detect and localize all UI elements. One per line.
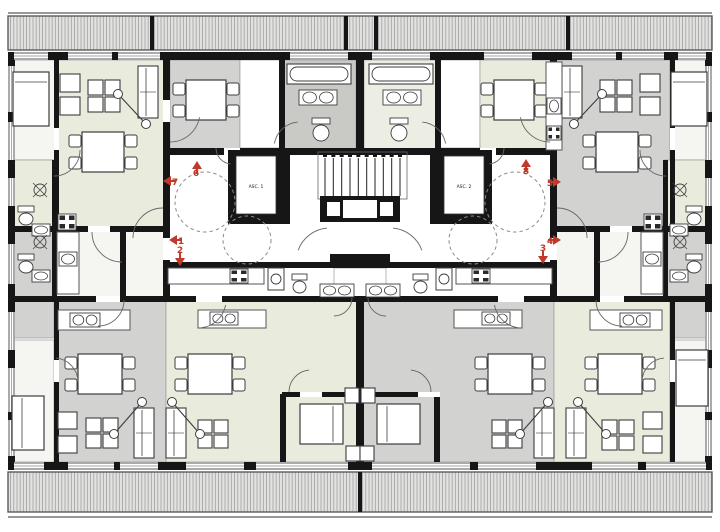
balcony-divider — [374, 16, 378, 50]
shelf — [640, 74, 660, 92]
shelf — [361, 388, 375, 403]
door-opening — [670, 128, 675, 150]
sofa-module — [619, 436, 634, 450]
chair — [639, 135, 651, 147]
entry-number-4: 4 — [547, 237, 553, 247]
tv-node — [142, 120, 151, 129]
toilet-tank — [686, 206, 702, 212]
chair — [175, 379, 187, 391]
entry-number-5: 5 — [547, 179, 553, 189]
chair — [123, 357, 135, 369]
door-opening — [498, 296, 524, 302]
chair — [69, 157, 81, 169]
sofa-module — [88, 97, 103, 112]
dining-table — [488, 354, 532, 394]
dining-table — [186, 80, 226, 120]
chair — [123, 379, 135, 391]
chair — [69, 135, 81, 147]
chair — [643, 379, 655, 391]
burner — [483, 271, 489, 275]
door-opening — [610, 226, 632, 232]
burner — [646, 224, 652, 229]
stair-nosing-dot — [373, 153, 377, 157]
burner — [646, 216, 652, 221]
stair-nosing-dot — [365, 153, 369, 157]
landing-inset — [343, 200, 377, 218]
balcony-divider — [566, 16, 570, 50]
toilet-bowl — [19, 213, 33, 225]
door-opening — [196, 296, 222, 302]
toilet-bowl — [391, 125, 407, 141]
door-opening — [300, 392, 322, 397]
stair-nosing-dot — [381, 153, 385, 157]
chair — [643, 357, 655, 369]
wall — [52, 160, 57, 298]
stair-nosing-dot — [348, 153, 352, 157]
stair-nosing-dot — [331, 153, 335, 157]
entrance-threshold — [330, 254, 390, 268]
landing-inset — [380, 202, 393, 216]
entry-number-3: 3 — [540, 244, 546, 254]
chair — [125, 157, 137, 169]
sofa-module — [619, 420, 634, 434]
chair — [233, 379, 245, 391]
room-corridor-top-right — [438, 60, 480, 148]
shelf — [346, 446, 360, 461]
entry-number-2: 2 — [177, 246, 183, 256]
chair — [125, 135, 137, 147]
burner — [474, 278, 480, 282]
stair-nosing-dot — [323, 153, 327, 157]
burner — [474, 271, 480, 275]
door-opening — [163, 238, 170, 260]
shelf — [345, 388, 359, 403]
sofa-module — [617, 80, 632, 95]
balcony-divider — [358, 472, 362, 512]
balcony-top — [8, 16, 712, 50]
shelf — [360, 446, 374, 461]
burner — [69, 224, 75, 229]
floor-plan-screenshot: ASC. 1ASC. 267128543 — [0, 0, 720, 532]
landing-inset — [327, 202, 340, 216]
toilet-bowl — [414, 281, 427, 293]
shelf — [643, 412, 662, 429]
toilet-tank — [292, 274, 307, 280]
door-opening — [96, 296, 120, 302]
shelf — [58, 412, 77, 429]
chair — [535, 105, 547, 117]
burner — [69, 216, 75, 221]
wall — [552, 296, 712, 302]
chair — [585, 379, 597, 391]
tv-node — [138, 398, 147, 407]
burner — [232, 271, 238, 275]
burner — [60, 224, 66, 229]
chair — [583, 135, 595, 147]
sofa-module — [86, 434, 101, 448]
toilet-bowl — [687, 213, 701, 225]
chair — [535, 83, 547, 95]
toilet-bowl — [19, 261, 33, 273]
washing-machine — [268, 268, 284, 290]
sofa-module — [214, 420, 228, 433]
balcony-divider — [344, 16, 348, 50]
entry-number-7: 7 — [172, 178, 178, 188]
room-wc-bottom-right — [670, 300, 710, 338]
double-sink — [383, 90, 421, 105]
toilet-tank — [18, 206, 34, 212]
toilet-tank — [390, 118, 408, 124]
tv-node — [196, 430, 205, 439]
chair — [233, 357, 245, 369]
chair — [175, 357, 187, 369]
sofa-module — [105, 97, 120, 112]
wall — [594, 232, 600, 296]
dining-table — [598, 354, 642, 394]
chair — [481, 105, 493, 117]
shelf — [640, 97, 660, 115]
dining-table — [82, 132, 124, 172]
burner — [232, 278, 238, 282]
room-service-right-2 — [664, 230, 710, 298]
room-corridor-top-left — [240, 60, 282, 148]
stair-nosing-dot — [398, 153, 402, 157]
tv-node — [574, 398, 583, 407]
tv-node — [516, 430, 525, 439]
chair — [639, 157, 651, 169]
double-sink — [620, 313, 650, 327]
chair — [533, 357, 545, 369]
tv-node — [544, 398, 553, 407]
toilet-tank — [686, 254, 702, 260]
dining-table — [596, 132, 638, 172]
toilet-tank — [18, 254, 34, 260]
bed — [377, 404, 420, 444]
chair — [227, 105, 239, 117]
double-sink — [299, 90, 337, 105]
burner — [655, 224, 661, 229]
door-opening — [54, 128, 59, 150]
stair-nosing-dot — [340, 153, 344, 157]
shelf — [58, 436, 77, 453]
double-sink — [366, 284, 400, 297]
chair — [173, 105, 185, 117]
stair-nosing-dot — [356, 153, 360, 157]
burner — [556, 128, 560, 132]
elevator-label: ASC. 2 — [457, 184, 472, 190]
double-sink — [70, 313, 100, 327]
burner — [556, 135, 560, 139]
bed — [13, 72, 49, 126]
room-wc-bottom-left — [10, 300, 54, 338]
door-opening — [88, 226, 110, 232]
wall — [165, 262, 330, 268]
floor-plan-svg: ASC. 1ASC. 267128543 — [0, 0, 720, 532]
toilet-bowl — [313, 125, 329, 141]
elevator-label: ASC. 1 — [249, 184, 264, 190]
chair — [583, 157, 595, 169]
wall — [356, 296, 364, 470]
balcony-divider — [150, 16, 154, 50]
chair — [481, 83, 493, 95]
stair-nosing-dot — [390, 153, 394, 157]
counter — [456, 268, 552, 284]
double-sink — [320, 284, 354, 297]
bed — [12, 396, 44, 450]
bed — [300, 404, 343, 444]
dining-table — [494, 80, 534, 120]
bed — [671, 72, 707, 126]
chair — [475, 357, 487, 369]
tv-node — [602, 430, 611, 439]
wall — [356, 52, 364, 150]
entry-number-8: 8 — [523, 167, 529, 177]
door-opening — [600, 296, 624, 302]
toilet-bowl — [687, 261, 701, 273]
burner — [483, 278, 489, 282]
door-opening — [54, 360, 59, 382]
chair — [173, 83, 185, 95]
tv-node — [114, 90, 123, 99]
bed — [676, 350, 708, 406]
wall — [8, 296, 168, 302]
toilet-tank — [312, 118, 330, 124]
burner — [655, 216, 661, 221]
shelf — [60, 97, 80, 115]
sofa-module — [617, 97, 632, 112]
wall — [390, 262, 555, 268]
chair — [65, 357, 77, 369]
sofa-module — [492, 420, 506, 433]
dining-table — [188, 354, 232, 394]
tv-node — [168, 398, 177, 407]
washing-machine — [436, 268, 452, 290]
floor-plan-root: ASC. 1ASC. 267128543 — [8, 13, 712, 517]
sofa-module — [88, 80, 103, 95]
shelf — [60, 74, 80, 92]
door-opening — [163, 100, 170, 122]
toilet-bowl — [293, 281, 306, 293]
burner — [549, 128, 553, 132]
wall — [120, 232, 126, 296]
burner — [241, 271, 247, 275]
wall — [280, 394, 286, 462]
entry-number-6: 6 — [193, 169, 199, 179]
sofa-module — [492, 435, 506, 448]
burner — [60, 216, 66, 221]
chair — [533, 379, 545, 391]
wall — [435, 60, 441, 150]
chair — [475, 379, 487, 391]
chair — [65, 379, 77, 391]
counter — [168, 268, 264, 284]
burner — [241, 278, 247, 282]
tv-node — [570, 120, 579, 129]
sofa-module — [214, 435, 228, 448]
chair — [585, 357, 597, 369]
shelf — [643, 436, 662, 453]
wall — [434, 394, 440, 462]
burner — [549, 135, 553, 139]
toilet-tank — [413, 274, 428, 280]
tv-node — [110, 430, 119, 439]
door-opening — [670, 360, 675, 382]
tv-node — [598, 90, 607, 99]
sofa-module — [600, 97, 615, 112]
chair — [227, 83, 239, 95]
wall — [279, 60, 285, 150]
sofa-module — [86, 418, 101, 432]
door-opening — [418, 392, 440, 397]
wall — [663, 160, 668, 298]
dining-table — [78, 354, 122, 394]
